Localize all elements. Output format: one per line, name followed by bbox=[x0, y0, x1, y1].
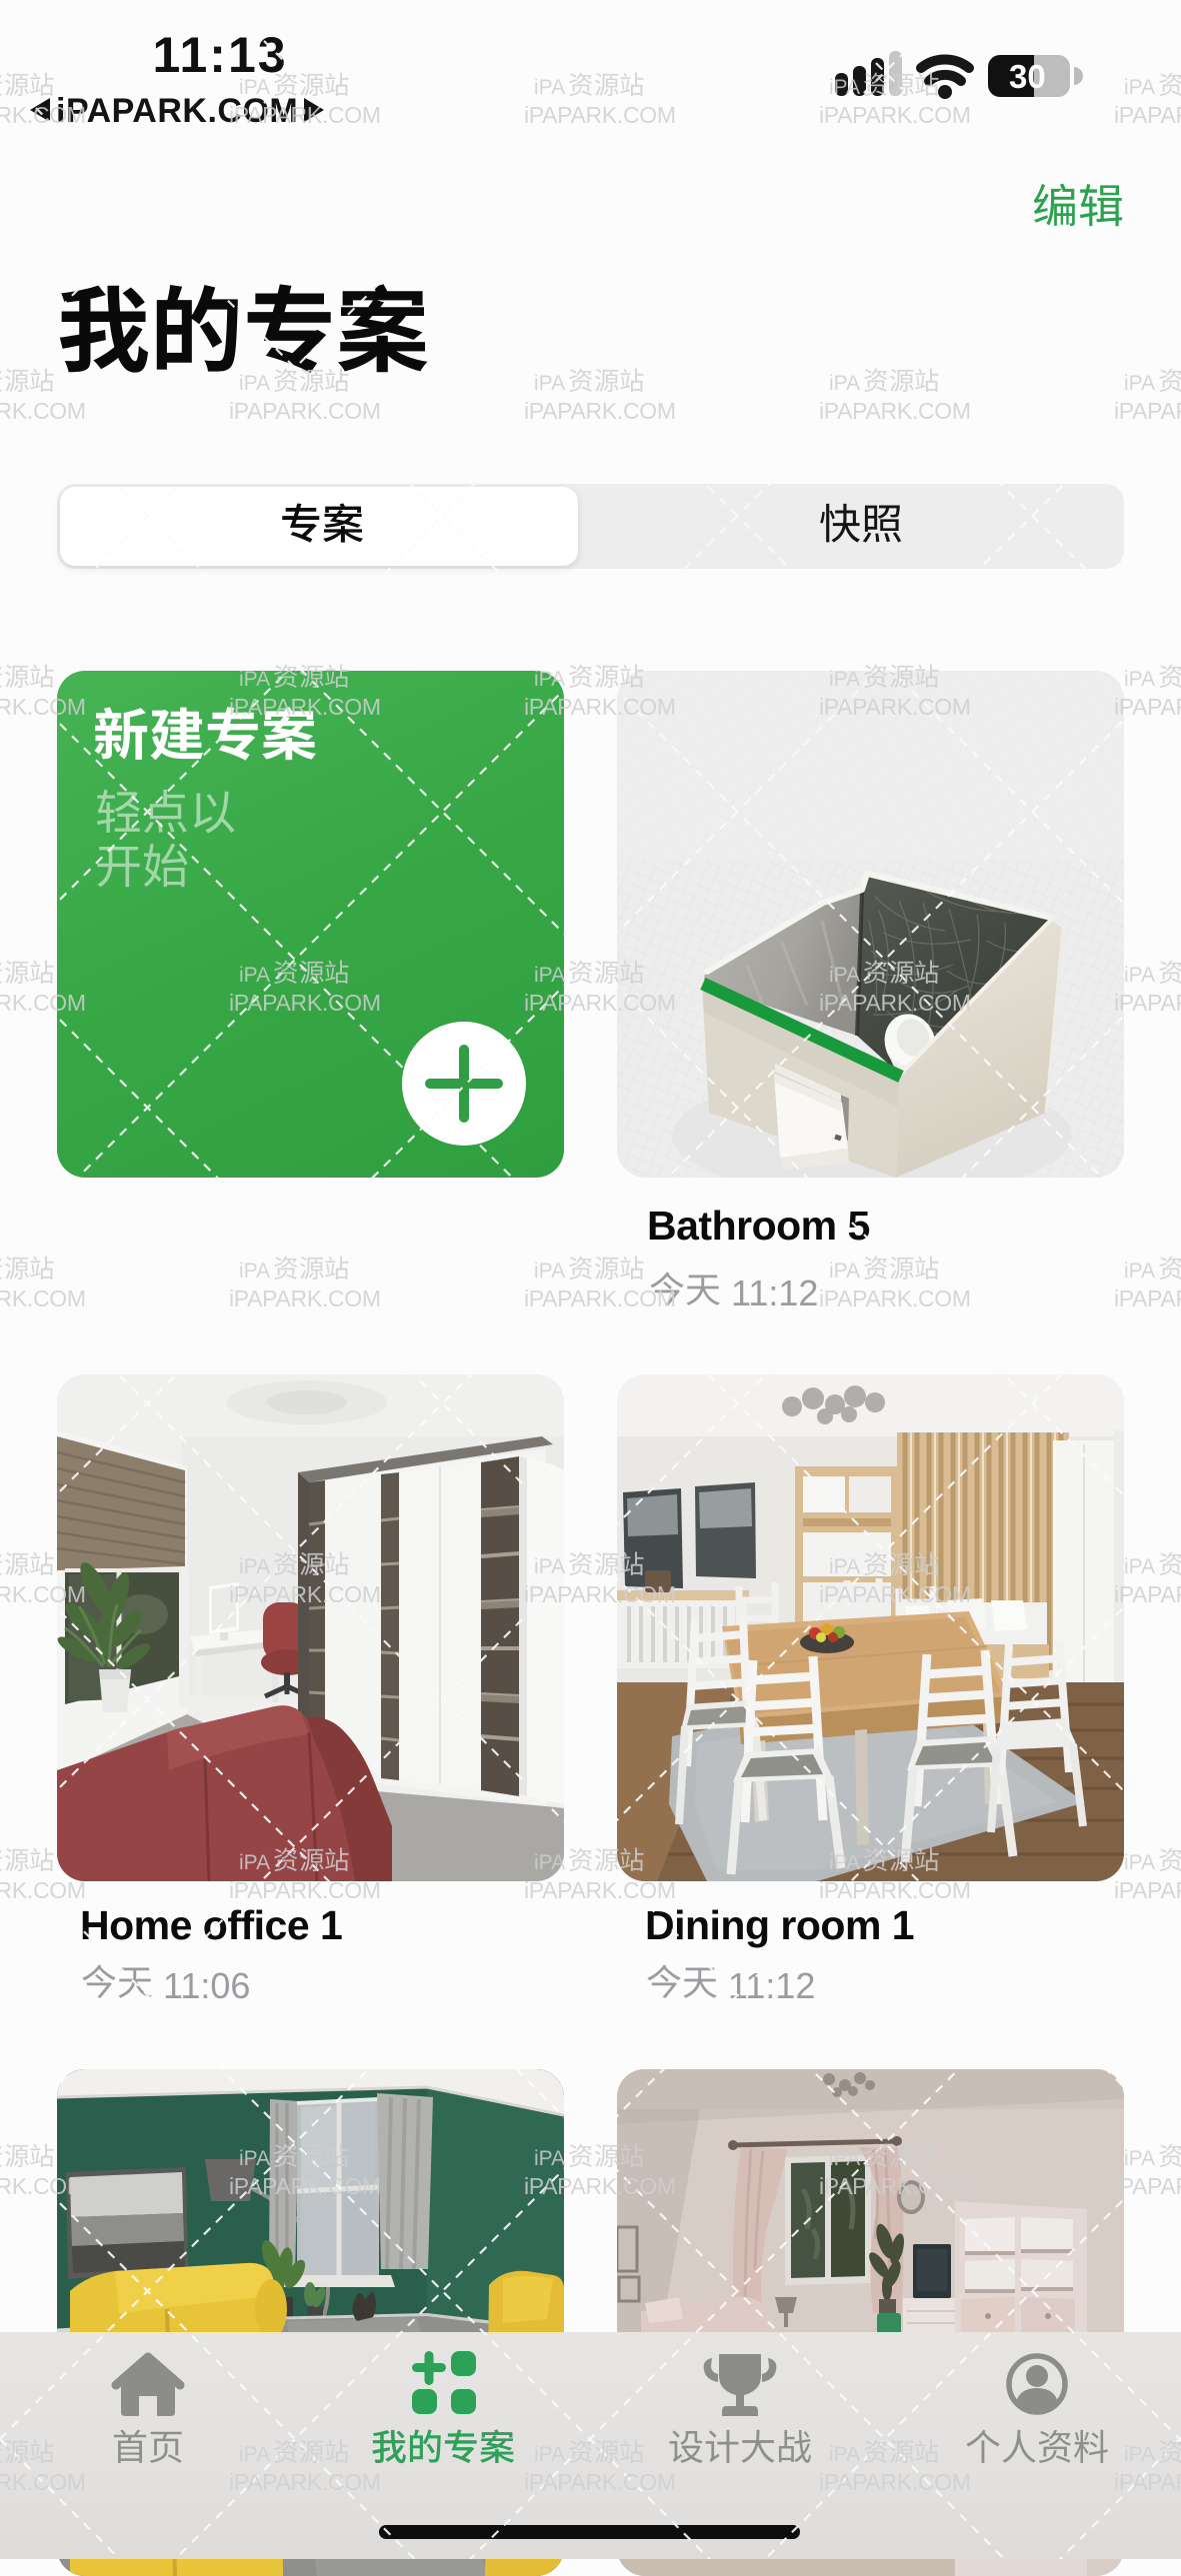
svg-text:30: 30 bbox=[1009, 58, 1046, 95]
svg-text:iPAPARK.COM: iPAPARK.COM bbox=[56, 92, 298, 130]
